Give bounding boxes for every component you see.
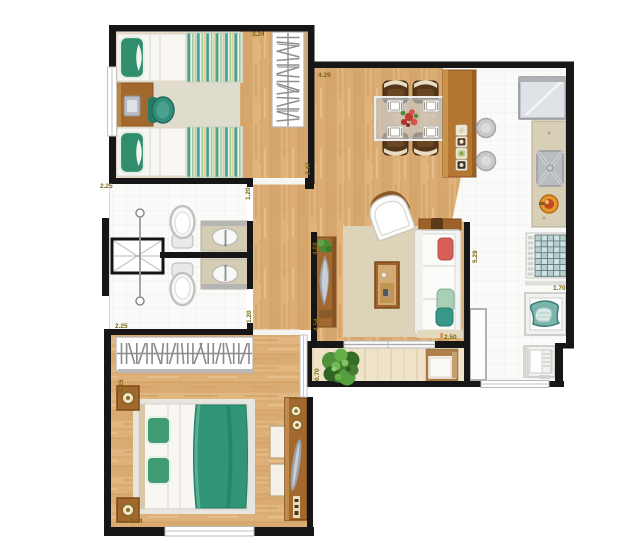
svg-text:4.29: 4.29	[318, 72, 331, 79]
svg-text:1.20: 1.20	[245, 187, 252, 200]
svg-text:3.25: 3.25	[118, 379, 125, 392]
svg-text:5.29: 5.29	[472, 250, 479, 263]
svg-text:2.25: 2.25	[115, 323, 128, 330]
svg-text:2.47: 2.47	[305, 162, 312, 175]
svg-text:4.54: 4.54	[313, 318, 320, 331]
svg-text:1.20: 1.20	[246, 310, 253, 323]
svg-text:3.24: 3.24	[252, 31, 265, 38]
svg-text:2.25: 2.25	[100, 183, 113, 190]
svg-text:0.70: 0.70	[314, 368, 321, 381]
svg-text:3.24: 3.24	[130, 518, 143, 525]
svg-text:1.70: 1.70	[553, 285, 566, 292]
svg-text:4.89: 4.89	[312, 242, 319, 255]
svg-text:2.50: 2.50	[444, 334, 457, 341]
